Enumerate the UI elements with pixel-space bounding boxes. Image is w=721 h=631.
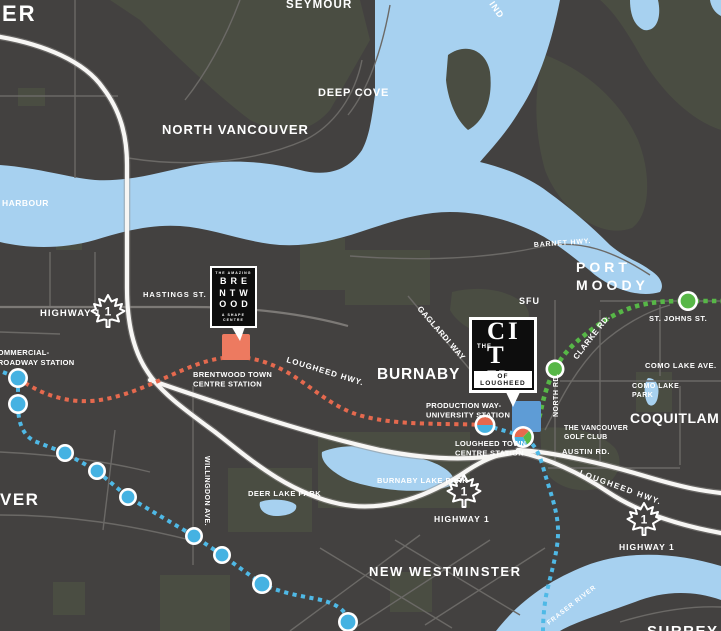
brentwood-logo-row: OOD	[212, 299, 255, 311]
label-como-lake-ave: COMO LAKE AVE.	[645, 361, 717, 370]
label-st-johns-st: ST. JOHNS ST.	[649, 314, 707, 323]
map-canvas: 111 ERSEYMOURDEEP COVENORTH VANCOUVERHAR…	[0, 0, 721, 631]
label-highway1-west: HIGHWAY 1	[40, 308, 101, 319]
blue-station-dot[interactable]	[185, 527, 203, 545]
label-harbour: HARBOUR	[2, 198, 49, 208]
highway-1-badge-number: 1	[461, 485, 468, 499]
label-deer-lake-park: DEER LAKE PARK	[248, 489, 321, 498]
label-highway1-mid: HIGHWAY 1	[434, 514, 490, 524]
blue-station-dot[interactable]	[56, 444, 74, 462]
label-lougheed-station: LOUGHEED TOWNCENTRE STATION	[455, 439, 526, 458]
label-willingdon-ave: WILLINGDON AVE.	[203, 456, 210, 526]
label-production-way-station: PRODUCTION WAY-UNIVERSITY STATION	[426, 401, 510, 420]
lougheed-logo-subtitle: OF LOUGHEED	[474, 371, 532, 388]
label-deep-cove: DEEP COVE	[318, 87, 389, 99]
label-north-rd: NORTH RD.	[553, 374, 560, 417]
label-commercial-broadway-station: COMMERCIAL-BROADWAY STATION	[0, 348, 74, 367]
label-vancouver-partial: VER	[0, 490, 39, 509]
label-coquitlam: COQUITLAM	[630, 410, 719, 426]
label-austin-rd: AUSTIN RD.	[562, 447, 610, 456]
highway-1-badge-number: 1	[105, 305, 112, 319]
label-north-vancouver: NORTH VANCOUVER	[162, 122, 309, 137]
blue-station-dot[interactable]	[8, 368, 28, 388]
city-of-lougheed-logo-callout[interactable]: THE CITY OF LOUGHEED	[469, 317, 537, 393]
brentwood-site-marker[interactable]	[222, 334, 250, 360]
blue-station-dot[interactable]	[252, 574, 272, 594]
label-brentwood-station: BRENTWOOD TOWNCENTRE STATION	[193, 370, 272, 389]
green-station-dot[interactable]	[678, 291, 698, 311]
label-hastings-st: HASTINGS ST.	[143, 290, 207, 299]
brentwood-logo-callout[interactable]: THE AMAZING BRE NTW OOD A SHAPE CENTRE	[210, 266, 257, 328]
transit-map-svg: 111 ERSEYMOURDEEP COVENORTH VANCOUVERHAR…	[0, 0, 721, 631]
blue-station-dot[interactable]	[88, 462, 106, 480]
label-highway1-east: HIGHWAY 1	[619, 542, 675, 552]
blue-station-dot[interactable]	[213, 546, 231, 564]
blue-station-dot[interactable]	[119, 488, 137, 506]
label-burnaby: BURNABY	[377, 366, 460, 383]
blue-station-dot[interactable]	[338, 612, 358, 631]
blue-station-dot[interactable]	[8, 394, 28, 414]
label-burnaby-lake-park: BURNABY LAKE PARK	[377, 476, 468, 485]
label-lougheed-hwy-west: LOUGHEED HWY.	[285, 355, 365, 387]
highway-1-badge-number: 1	[641, 513, 648, 527]
brentwood-logo-row: NTW	[212, 288, 255, 300]
label-sfu: SFU	[519, 296, 540, 306]
label-seymour: SEYMOUR	[286, 0, 353, 11]
fraser-river-water	[496, 555, 721, 631]
brentwood-logo-row: BRE	[212, 276, 255, 288]
label-surrey-partial: SURREY	[647, 623, 719, 631]
label-new-westminster: NEW WESTMINSTER	[369, 564, 522, 579]
label-er-partial: ER	[2, 1, 37, 26]
brentwood-tagline-bottom: A SHAPE CENTRE	[212, 313, 255, 323]
